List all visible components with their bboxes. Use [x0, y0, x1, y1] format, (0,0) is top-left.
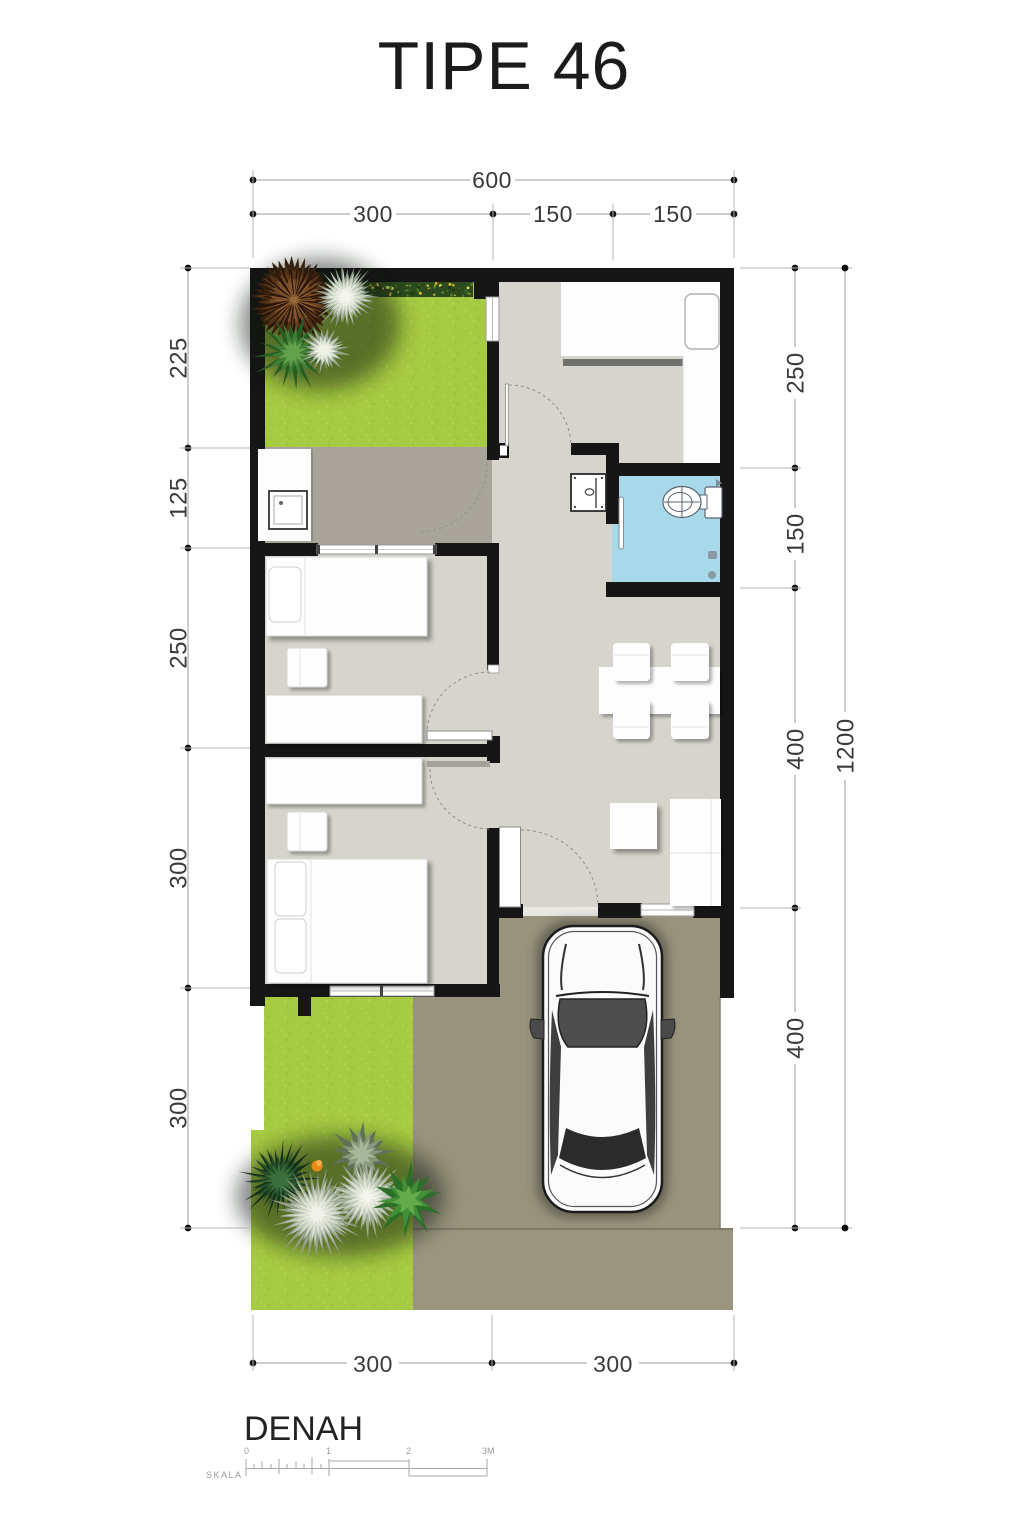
svg-text:150: 150 [533, 201, 573, 227]
svg-text:1: 1 [326, 1446, 331, 1456]
svg-text:300: 300 [353, 1351, 393, 1377]
svg-text:150: 150 [653, 201, 693, 227]
svg-text:600: 600 [472, 167, 512, 193]
svg-text:300: 300 [166, 1087, 193, 1129]
svg-text:SKALA: SKALA [206, 1470, 243, 1480]
svg-text:1200: 1200 [833, 718, 860, 773]
svg-text:3M: 3M [482, 1446, 495, 1456]
svg-text:300: 300 [593, 1351, 633, 1377]
svg-text:400: 400 [783, 1017, 810, 1059]
svg-text:250: 250 [783, 352, 810, 394]
svg-text:225: 225 [166, 337, 193, 379]
svg-text:125: 125 [166, 477, 193, 519]
svg-text:150: 150 [783, 513, 810, 555]
svg-text:300: 300 [353, 201, 393, 227]
svg-text:DENAH: DENAH [244, 1410, 363, 1448]
svg-text:400: 400 [783, 728, 810, 770]
svg-text:0: 0 [244, 1446, 249, 1456]
svg-text:TIPE 46: TIPE 46 [378, 28, 631, 104]
svg-text:2: 2 [406, 1446, 411, 1456]
svg-text:250: 250 [166, 627, 193, 669]
svg-text:300: 300 [166, 847, 193, 889]
